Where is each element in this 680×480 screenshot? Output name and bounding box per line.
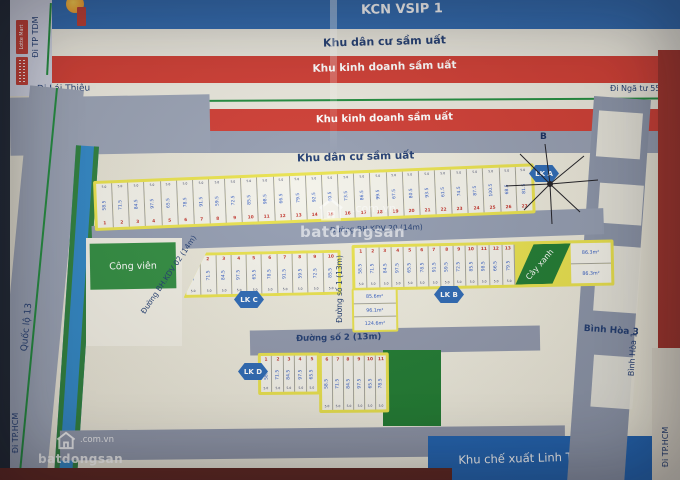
- plot-cell: 85.6m²: [354, 290, 396, 304]
- lotte-mart-label: Lotte Mart: [19, 23, 25, 50]
- plot-dimension: 5.0: [472, 171, 477, 174]
- plot-dimension: 5.0: [247, 180, 252, 183]
- plot-area: 61.5: [441, 186, 446, 196]
- plot-dimension: 5.0: [298, 288, 303, 291]
- plot-cell: 791.55.0: [428, 246, 441, 286]
- plot-cell: 658.55.0: [322, 356, 333, 410]
- plot-area: 124.6m²: [365, 321, 385, 327]
- plot-dimension: 5.0: [134, 184, 139, 187]
- plot-cell: 5.092.514: [306, 175, 324, 220]
- plot-number: 4: [396, 249, 399, 253]
- lotte-mart-tag: Lotte Mart: [16, 20, 28, 54]
- plot-area: 84.5: [134, 199, 139, 209]
- plot-dimension: 5.0: [329, 287, 334, 290]
- plot-number: 24: [473, 206, 479, 211]
- plot-area: 98.5: [481, 261, 486, 271]
- plot-dimension: 5.0: [101, 186, 106, 189]
- plot-number: 6: [420, 248, 423, 252]
- plot-cell: 972.55.0: [308, 253, 324, 292]
- plot-area: 92.5: [312, 192, 317, 202]
- plot-cell: 5.098.511: [257, 177, 275, 222]
- plot-number: 23: [457, 207, 463, 212]
- compass: B: [498, 134, 602, 226]
- plot-dimension: 5.0: [371, 283, 376, 286]
- plot-area: 58.5: [358, 263, 363, 273]
- plot-dimension: 5.0: [376, 175, 381, 178]
- plot-cell: 497.55.0: [231, 255, 247, 294]
- plot-cell: 5.080.520: [403, 171, 421, 216]
- plot-dimension: 5.0: [336, 405, 341, 408]
- plot-cell: 384.55.0: [284, 356, 296, 392]
- plot-cell: 5.097.54: [144, 181, 162, 226]
- plot-cell: 271.55.0: [272, 356, 284, 392]
- di-tphcm-right-label: Đi TP.HCM: [661, 419, 671, 475]
- plot-area: 84.5: [287, 369, 292, 379]
- plot-cell: 5.079.513: [290, 175, 308, 220]
- plot-number: 11: [378, 357, 384, 361]
- plot-area: 86.5: [360, 190, 365, 200]
- road-so-1-label: Đường số 1 (13m): [335, 249, 345, 329]
- plot-cell: 771.55.0: [333, 356, 344, 410]
- cay-xanh-label: Cây xanh: [524, 247, 555, 281]
- left-photo-edge: [0, 0, 10, 480]
- plot-number: 9: [233, 216, 236, 220]
- plot-cell: 5.087.524: [467, 168, 485, 213]
- plot-area: 59.5: [298, 268, 303, 278]
- plot-cell: 271.55.0: [201, 255, 217, 294]
- plot-area: 59.5: [444, 261, 449, 271]
- plot-area: 72.5: [231, 195, 236, 205]
- plot-area: 99.5: [376, 189, 381, 199]
- plot-area: 91.5: [432, 262, 437, 272]
- plot-area: 59.5: [215, 195, 220, 205]
- plot-dimension: 5.0: [264, 387, 269, 390]
- plot-number: 8: [217, 217, 220, 221]
- plot-dimension: 5.0: [494, 280, 499, 283]
- plot-number: 3: [287, 358, 290, 362]
- plot-area: 84.5: [221, 270, 226, 280]
- plot-number: 15: [328, 212, 334, 217]
- plot-dimension: 5.0: [396, 282, 401, 285]
- plot-area: 71.5: [335, 378, 340, 388]
- plot-cell: 997.55.0: [354, 356, 365, 410]
- plot-dimension: 5.0: [263, 179, 268, 182]
- plot-area: 85.6m²: [366, 293, 383, 299]
- plot-dimension: 5.0: [275, 387, 280, 390]
- plot-row-lk-c: 158.55.0271.55.0384.55.0497.55.0565.55.0…: [183, 250, 342, 298]
- cay-xanh-strip: Cây xanh: [515, 243, 572, 284]
- plot-number: 2: [120, 221, 123, 225]
- plot-number: 12: [280, 214, 286, 219]
- plot-area: 84.5: [383, 263, 388, 273]
- plot-dimension: 5.0: [379, 405, 384, 408]
- plot-cell: 565.55.0: [404, 247, 417, 287]
- plot-area: 65.5: [252, 269, 257, 279]
- binh-hoa-3-label: Bình Hòa 3: [583, 324, 636, 338]
- plot-cell: 384.55.0: [379, 247, 392, 287]
- plot-dimension: 5.0: [150, 184, 155, 187]
- plot-number: 10: [367, 357, 373, 361]
- plot-number: 6: [325, 358, 328, 362]
- plot-dimension: 5.0: [283, 288, 288, 291]
- plot-dimension: 5.0: [506, 280, 511, 283]
- plot-cell: 384.55.0: [216, 255, 232, 294]
- plot-dimension: 5.0: [166, 183, 171, 186]
- plot-cell: 5.085.510: [241, 177, 259, 222]
- plot-number: 3: [383, 249, 386, 253]
- di-tphcm-left-label: Đi TP.HCM: [11, 405, 21, 461]
- plot-number: 5: [252, 256, 255, 260]
- plot-area: 72.5: [313, 268, 318, 278]
- road-marking-2: [597, 183, 644, 226]
- plot-row-lk-d: 658.55.0771.55.0884.55.0997.55.01065.55.…: [319, 352, 390, 413]
- plot-area: 65.5: [167, 197, 172, 207]
- plot-number: 1: [265, 358, 268, 362]
- plot-number: 20: [409, 209, 415, 214]
- plot-cell: 791.55.0: [277, 254, 293, 293]
- plot-number: 5: [310, 357, 313, 361]
- plot-area: 71.5: [206, 270, 211, 280]
- plot-area: 79.5: [296, 192, 301, 202]
- plot-dimension: 5.0: [295, 178, 300, 181]
- subdivision-map-photo: KCN VSIP 1 Khu dân cư sầm uất Khu kinh d…: [0, 0, 680, 480]
- plot-area: 66.5: [279, 193, 284, 203]
- plot-cell: 678.55.0: [416, 246, 429, 286]
- plot-area: 79.5: [506, 260, 511, 270]
- plot-area: 97.5: [237, 270, 242, 280]
- plot-dimension: 5.0: [346, 405, 351, 408]
- plot-dimension: 5.0: [408, 282, 413, 285]
- plot-dimension: 5.0: [191, 290, 196, 293]
- plot-cell: 1379.55.0: [502, 245, 515, 285]
- plot-area: 71.5: [275, 369, 280, 379]
- plot-area: 73.5: [344, 190, 349, 200]
- plot-dimension: 5.0: [432, 281, 437, 284]
- plot-number: 9: [457, 248, 460, 252]
- plot-cell: 1178.55.0: [376, 355, 386, 409]
- residential-top-label: Khu dân cư sầm uất: [292, 33, 477, 51]
- plot-cell: 1085.55.0: [465, 245, 478, 285]
- plot-number: 13: [505, 247, 511, 251]
- band-residential-top: Khu dân cư sầm uất: [52, 29, 680, 56]
- plot-area: 85.5: [469, 261, 474, 271]
- plot-cell: 678.55.0: [262, 254, 278, 293]
- plot-area: 85.5: [247, 194, 252, 204]
- plot-area: 71.5: [118, 199, 123, 209]
- plot-dimension: 5.0: [214, 181, 219, 184]
- plot-cell: 5.099.518: [370, 172, 388, 217]
- cong-vien-label: Công viên: [109, 260, 157, 272]
- plot-area: 85.5: [328, 268, 333, 278]
- plot-number: 2: [276, 358, 279, 362]
- plot-cell: 5.078.56: [177, 180, 195, 225]
- plot-number: 11: [480, 247, 486, 251]
- plot-cell: 497.55.0: [295, 356, 307, 392]
- plot-number: 19: [392, 210, 398, 215]
- plot-number: 25: [489, 206, 495, 211]
- plot-cell: 565.55.0: [306, 355, 317, 391]
- plot-dimension: 5.0: [222, 289, 227, 292]
- plot-number: 13: [296, 214, 302, 219]
- plot-number: 1: [359, 250, 362, 254]
- road-marking-1: [596, 110, 643, 159]
- plot-number: 10: [468, 247, 474, 251]
- plot-cell: 5.066.512: [274, 176, 292, 221]
- plot-area: 100.5: [489, 183, 494, 196]
- plot-area: 58.5: [325, 378, 330, 388]
- plot-cell: 5.093.521: [419, 170, 437, 215]
- plot-area: 78.5: [379, 378, 384, 388]
- plot-area: 87.5: [473, 185, 478, 195]
- plot-area: 78.5: [183, 197, 188, 207]
- plot-dimension: 5.0: [311, 177, 316, 180]
- plot-area: 91.5: [199, 196, 204, 206]
- plot-dimension: 5.0: [457, 281, 462, 284]
- plot-dimension: 5.0: [327, 177, 332, 180]
- plot-area: 71.5: [371, 263, 376, 273]
- plot-dimension: 5.0: [343, 176, 348, 179]
- plot-dimension: 5.0: [469, 281, 474, 284]
- plot-number: 5: [408, 249, 411, 253]
- plot-number: 3: [136, 220, 139, 224]
- plot-cell: 5.067.519: [386, 172, 404, 217]
- plot-dimension: 5.0: [287, 387, 292, 390]
- bottom-photo-edge: [0, 468, 452, 480]
- plot-cell: 5.072.59: [225, 178, 243, 223]
- plot-number: 4: [299, 357, 302, 361]
- plot-cell: 5.061.522: [435, 170, 453, 215]
- plot-number: 10: [247, 215, 253, 220]
- plot-dimension: 5.0: [325, 405, 330, 408]
- red-edge-strip: [658, 50, 680, 348]
- plot-area: 97.5: [357, 378, 362, 388]
- plot-number: 17: [360, 211, 366, 216]
- plot-cell: 5.065.55: [161, 181, 179, 226]
- plot-cell: 859.55.0: [293, 253, 309, 292]
- landmark-tag-2: [16, 57, 28, 85]
- plot-area: 65.5: [368, 378, 373, 388]
- plot-dimension: 5.0: [182, 183, 187, 186]
- band-business-1: Khu kinh doanh sầm uất: [52, 56, 680, 83]
- plot-cell: 124.6m²: [354, 317, 396, 330]
- ql13-median: [18, 88, 58, 480]
- plot-dimension: 5.0: [488, 170, 493, 173]
- plot-cell: 5.086.517: [354, 173, 372, 218]
- plot-dimension: 5.0: [482, 280, 487, 283]
- plot-cell: 565.55.0: [247, 254, 263, 293]
- plot-number: 22: [441, 208, 447, 213]
- plot-number: 4: [152, 219, 155, 223]
- plot-cell: 1266.55.0: [490, 245, 503, 285]
- business-1-label: Khu kinh doanh sầm uất: [292, 59, 477, 76]
- plot-number: 8: [445, 248, 448, 252]
- plot-number: 7: [283, 256, 286, 260]
- band-kcn-vsip: KCN VSIP 1: [52, 0, 680, 29]
- plot-cell: 5.071.52: [112, 183, 130, 228]
- plot-area: 78.5: [267, 269, 272, 279]
- plot-dimension: 5.0: [420, 282, 425, 285]
- plot-dimension: 5.0: [456, 171, 461, 174]
- plot-number: 11: [263, 215, 269, 220]
- plot-area: 72.5: [457, 261, 462, 271]
- plot-cell: 5.060.515: [322, 174, 340, 219]
- plot-number: 14: [312, 213, 318, 218]
- plot-dimension: 5.0: [252, 289, 257, 292]
- plot-area: 65.5: [408, 262, 413, 272]
- compass-star-icon: [498, 134, 602, 226]
- plot-number: 6: [268, 256, 271, 260]
- plot-dimension: 5.0: [118, 185, 123, 188]
- plot-number: 12: [493, 247, 499, 251]
- plot-cell: 158.55.0: [355, 248, 368, 288]
- plot-number: 2: [371, 249, 374, 253]
- plot-area: 74.5: [457, 186, 462, 196]
- plot-dimension: 5.0: [392, 174, 397, 177]
- right-plot-stack: 86.3m²86.3m²: [571, 243, 612, 284]
- plot-number: 5: [168, 219, 171, 223]
- plot-area: 97.5: [298, 369, 303, 379]
- plot-number: 7: [433, 248, 436, 252]
- plot-cell: 1065.55.0: [365, 356, 376, 410]
- plot-cell: 5.084.53: [128, 182, 146, 227]
- plot-cell: 884.55.0: [343, 356, 354, 410]
- plot-cell: 972.55.0: [453, 246, 466, 286]
- plot-area: 58.5: [102, 200, 107, 210]
- plot-number: 18: [376, 210, 382, 215]
- business-2-label: Khu kinh doanh sầm uất: [292, 111, 477, 126]
- plot-area: 80.5: [409, 188, 414, 198]
- plot-cell: 1198.55.0: [478, 245, 491, 285]
- plot-number: 4: [237, 257, 240, 261]
- plot-area: 93.5: [425, 187, 430, 197]
- plot-dimension: 5.0: [313, 287, 318, 290]
- plot-number: 2: [207, 257, 210, 261]
- plot-cell: 86.3m²: [571, 263, 611, 283]
- plot-dimension: 5.0: [359, 283, 364, 286]
- plot-dimension: 5.0: [279, 179, 284, 182]
- di-tp-tdm-label: Đi TP TDM: [31, 9, 41, 65]
- plot-dimension: 5.0: [230, 181, 235, 184]
- plot-area: 67.5: [392, 188, 397, 198]
- plot-dimension: 5.0: [357, 405, 362, 408]
- plot-number: 9: [314, 255, 317, 259]
- plot-dimension: 5.0: [206, 290, 211, 293]
- plot-dimension: 5.0: [310, 387, 315, 390]
- plot-area: 96.1m²: [366, 307, 383, 313]
- plot-number: 6: [184, 218, 187, 222]
- plot-area: 65.5: [310, 369, 315, 379]
- plot-number: 10: [327, 255, 333, 259]
- plot-area: 78.5: [420, 262, 425, 272]
- plot-dimension: 5.0: [445, 281, 450, 284]
- plot-dimension: 5.0: [408, 173, 413, 176]
- plot-number: 7: [336, 358, 339, 362]
- plot-dimension: 5.0: [424, 173, 429, 176]
- plot-row-lk-b: 158.55.0271.55.0384.55.0497.55.0565.55.0…: [352, 240, 615, 291]
- plot-area: 84.5: [346, 378, 351, 388]
- landmark-tag-icon: [77, 7, 86, 26]
- plot-corner-stack: 85.6m²96.1m²124.6m²: [352, 288, 399, 333]
- plot-area: 60.5: [328, 191, 333, 201]
- plot-area: 98.5: [263, 194, 268, 204]
- plot-cell: 271.55.0: [367, 247, 380, 287]
- plot-dimension: 5.0: [359, 175, 364, 178]
- plot-cell: 96.1m²: [354, 303, 396, 317]
- plot-area: 86.3m²: [582, 250, 599, 256]
- compass-north-label: B: [540, 132, 547, 142]
- plot-dimension: 5.0: [298, 387, 303, 390]
- plot-area: 86.3m²: [583, 270, 600, 276]
- plot-row-lk-d: 158.55.0271.55.0384.55.0497.55.0565.55.0: [258, 352, 320, 395]
- plot-number: 8: [298, 255, 301, 259]
- plot-dimension: 5.0: [268, 288, 273, 291]
- plot-area: 97.5: [395, 262, 400, 272]
- plot-cell: 5.058.51: [96, 183, 114, 228]
- plot-dimension: 5.0: [198, 182, 203, 185]
- fold-highlight: [330, 0, 337, 155]
- plot-number: 3: [222, 257, 225, 261]
- plot-cell: 5.073.516: [338, 174, 356, 219]
- plot-dimension: 5.0: [440, 172, 445, 175]
- plot-number: 1: [104, 221, 107, 225]
- plot-number: 9: [358, 357, 361, 361]
- lkd-green-block: [383, 350, 441, 426]
- plot-cell: 859.55.0: [441, 246, 454, 286]
- plot-cell: 5.074.523: [451, 169, 469, 214]
- plot-area: 97.5: [150, 198, 155, 208]
- plot-area: 91.5: [283, 269, 288, 279]
- plot-number: 21: [425, 208, 431, 213]
- plot-area: 66.5: [494, 260, 499, 270]
- plot-cell: 86.3m²: [571, 243, 611, 264]
- plot-number: 8: [347, 358, 350, 362]
- plot-cell: 497.55.0: [392, 247, 405, 287]
- plot-dimension: 5.0: [383, 282, 388, 285]
- plot-dimension: 5.0: [368, 405, 373, 408]
- plot-cell: 5.059.58: [209, 179, 227, 224]
- plot-number: 16: [344, 212, 350, 217]
